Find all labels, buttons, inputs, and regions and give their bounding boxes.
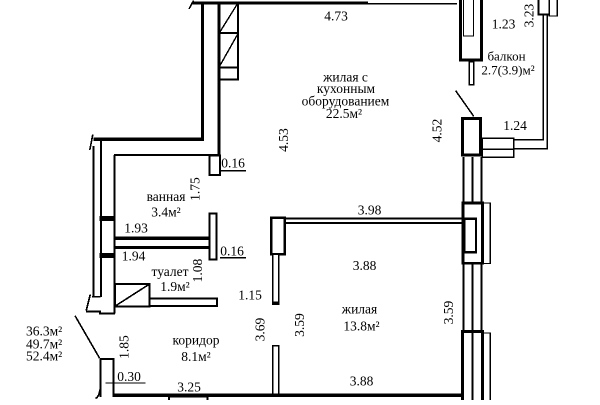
svg-text:1.08: 1.08 (190, 258, 205, 282)
svg-text:ванная: ванная (147, 189, 186, 204)
svg-text:жилая: жилая (341, 302, 378, 317)
svg-text:1.9м²: 1.9м² (160, 279, 189, 294)
svg-text:3.69: 3.69 (253, 317, 268, 341)
svg-text:22.5м²: 22.5м² (326, 106, 362, 121)
svg-text:3.88: 3.88 (350, 374, 374, 389)
svg-text:туалет: туалет (151, 264, 188, 279)
svg-text:3.25: 3.25 (177, 380, 201, 395)
svg-text:52.4м²: 52.4м² (26, 349, 62, 364)
svg-text:3.88: 3.88 (353, 258, 377, 273)
svg-text:1.94: 1.94 (122, 249, 146, 264)
svg-text:4.53: 4.53 (276, 128, 291, 152)
svg-text:3.98: 3.98 (358, 203, 382, 218)
svg-text:3.59: 3.59 (441, 300, 456, 324)
svg-text:0.30: 0.30 (117, 369, 141, 384)
svg-text:8.1м²: 8.1м² (181, 349, 210, 364)
svg-text:1.85: 1.85 (117, 335, 132, 359)
svg-text:0.16: 0.16 (221, 156, 245, 171)
svg-text:1.93: 1.93 (124, 221, 148, 236)
svg-text:4.73: 4.73 (324, 9, 348, 24)
svg-text:коридор: коридор (173, 333, 220, 348)
svg-text:0.16: 0.16 (220, 244, 244, 259)
svg-text:1.75: 1.75 (188, 177, 203, 201)
svg-text:4.52: 4.52 (430, 119, 445, 143)
svg-text:2.7(3.9)м²: 2.7(3.9)м² (481, 63, 534, 78)
svg-text:1.24: 1.24 (503, 118, 527, 133)
svg-text:1.15: 1.15 (238, 288, 262, 303)
svg-text:3.4м²: 3.4м² (151, 205, 180, 220)
svg-text:3.23: 3.23 (522, 3, 537, 27)
svg-text:балкон: балкон (487, 49, 525, 64)
svg-text:3.59: 3.59 (292, 313, 307, 337)
svg-text:13.8м²: 13.8м² (343, 319, 379, 334)
svg-text:1.23: 1.23 (492, 17, 516, 32)
